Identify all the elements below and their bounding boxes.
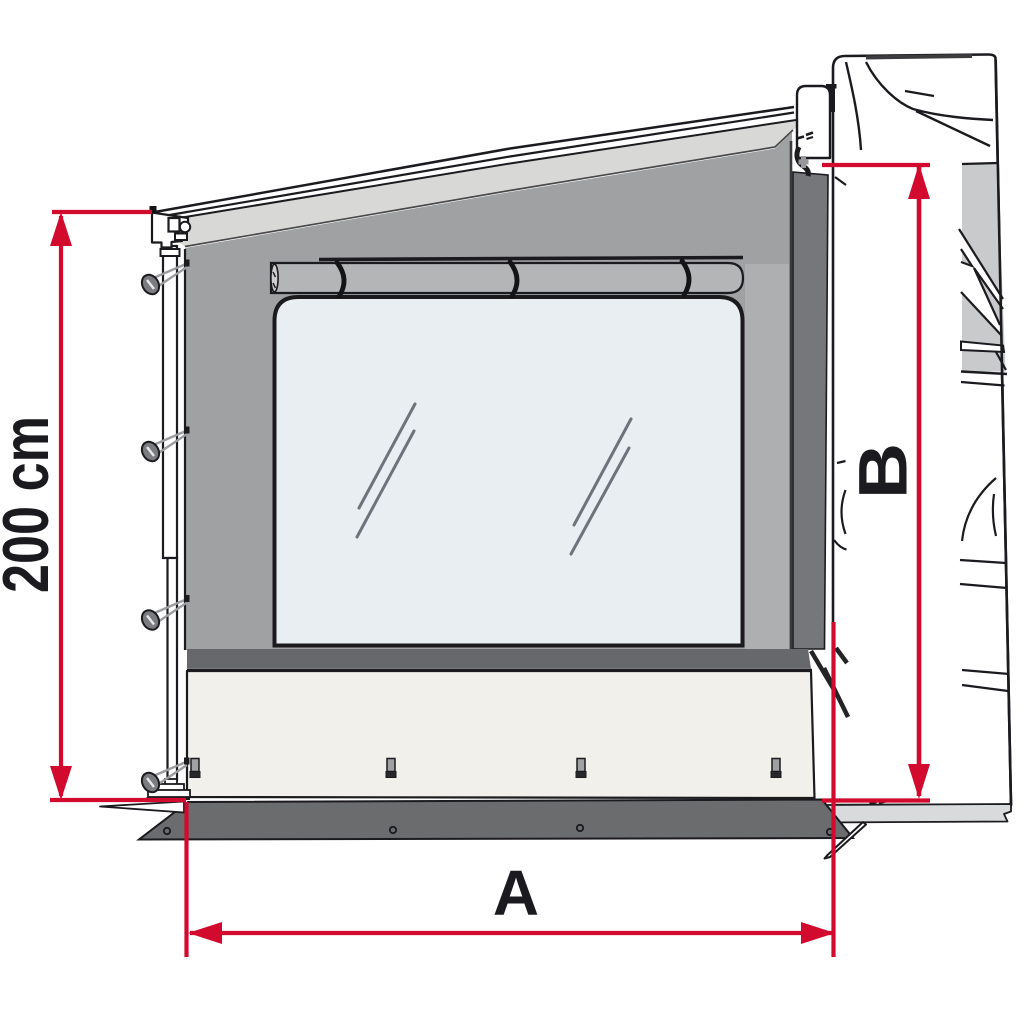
svg-text:B: B <box>844 443 922 499</box>
svg-text:200 cm: 200 cm <box>0 416 62 593</box>
svg-text:A: A <box>493 857 539 929</box>
